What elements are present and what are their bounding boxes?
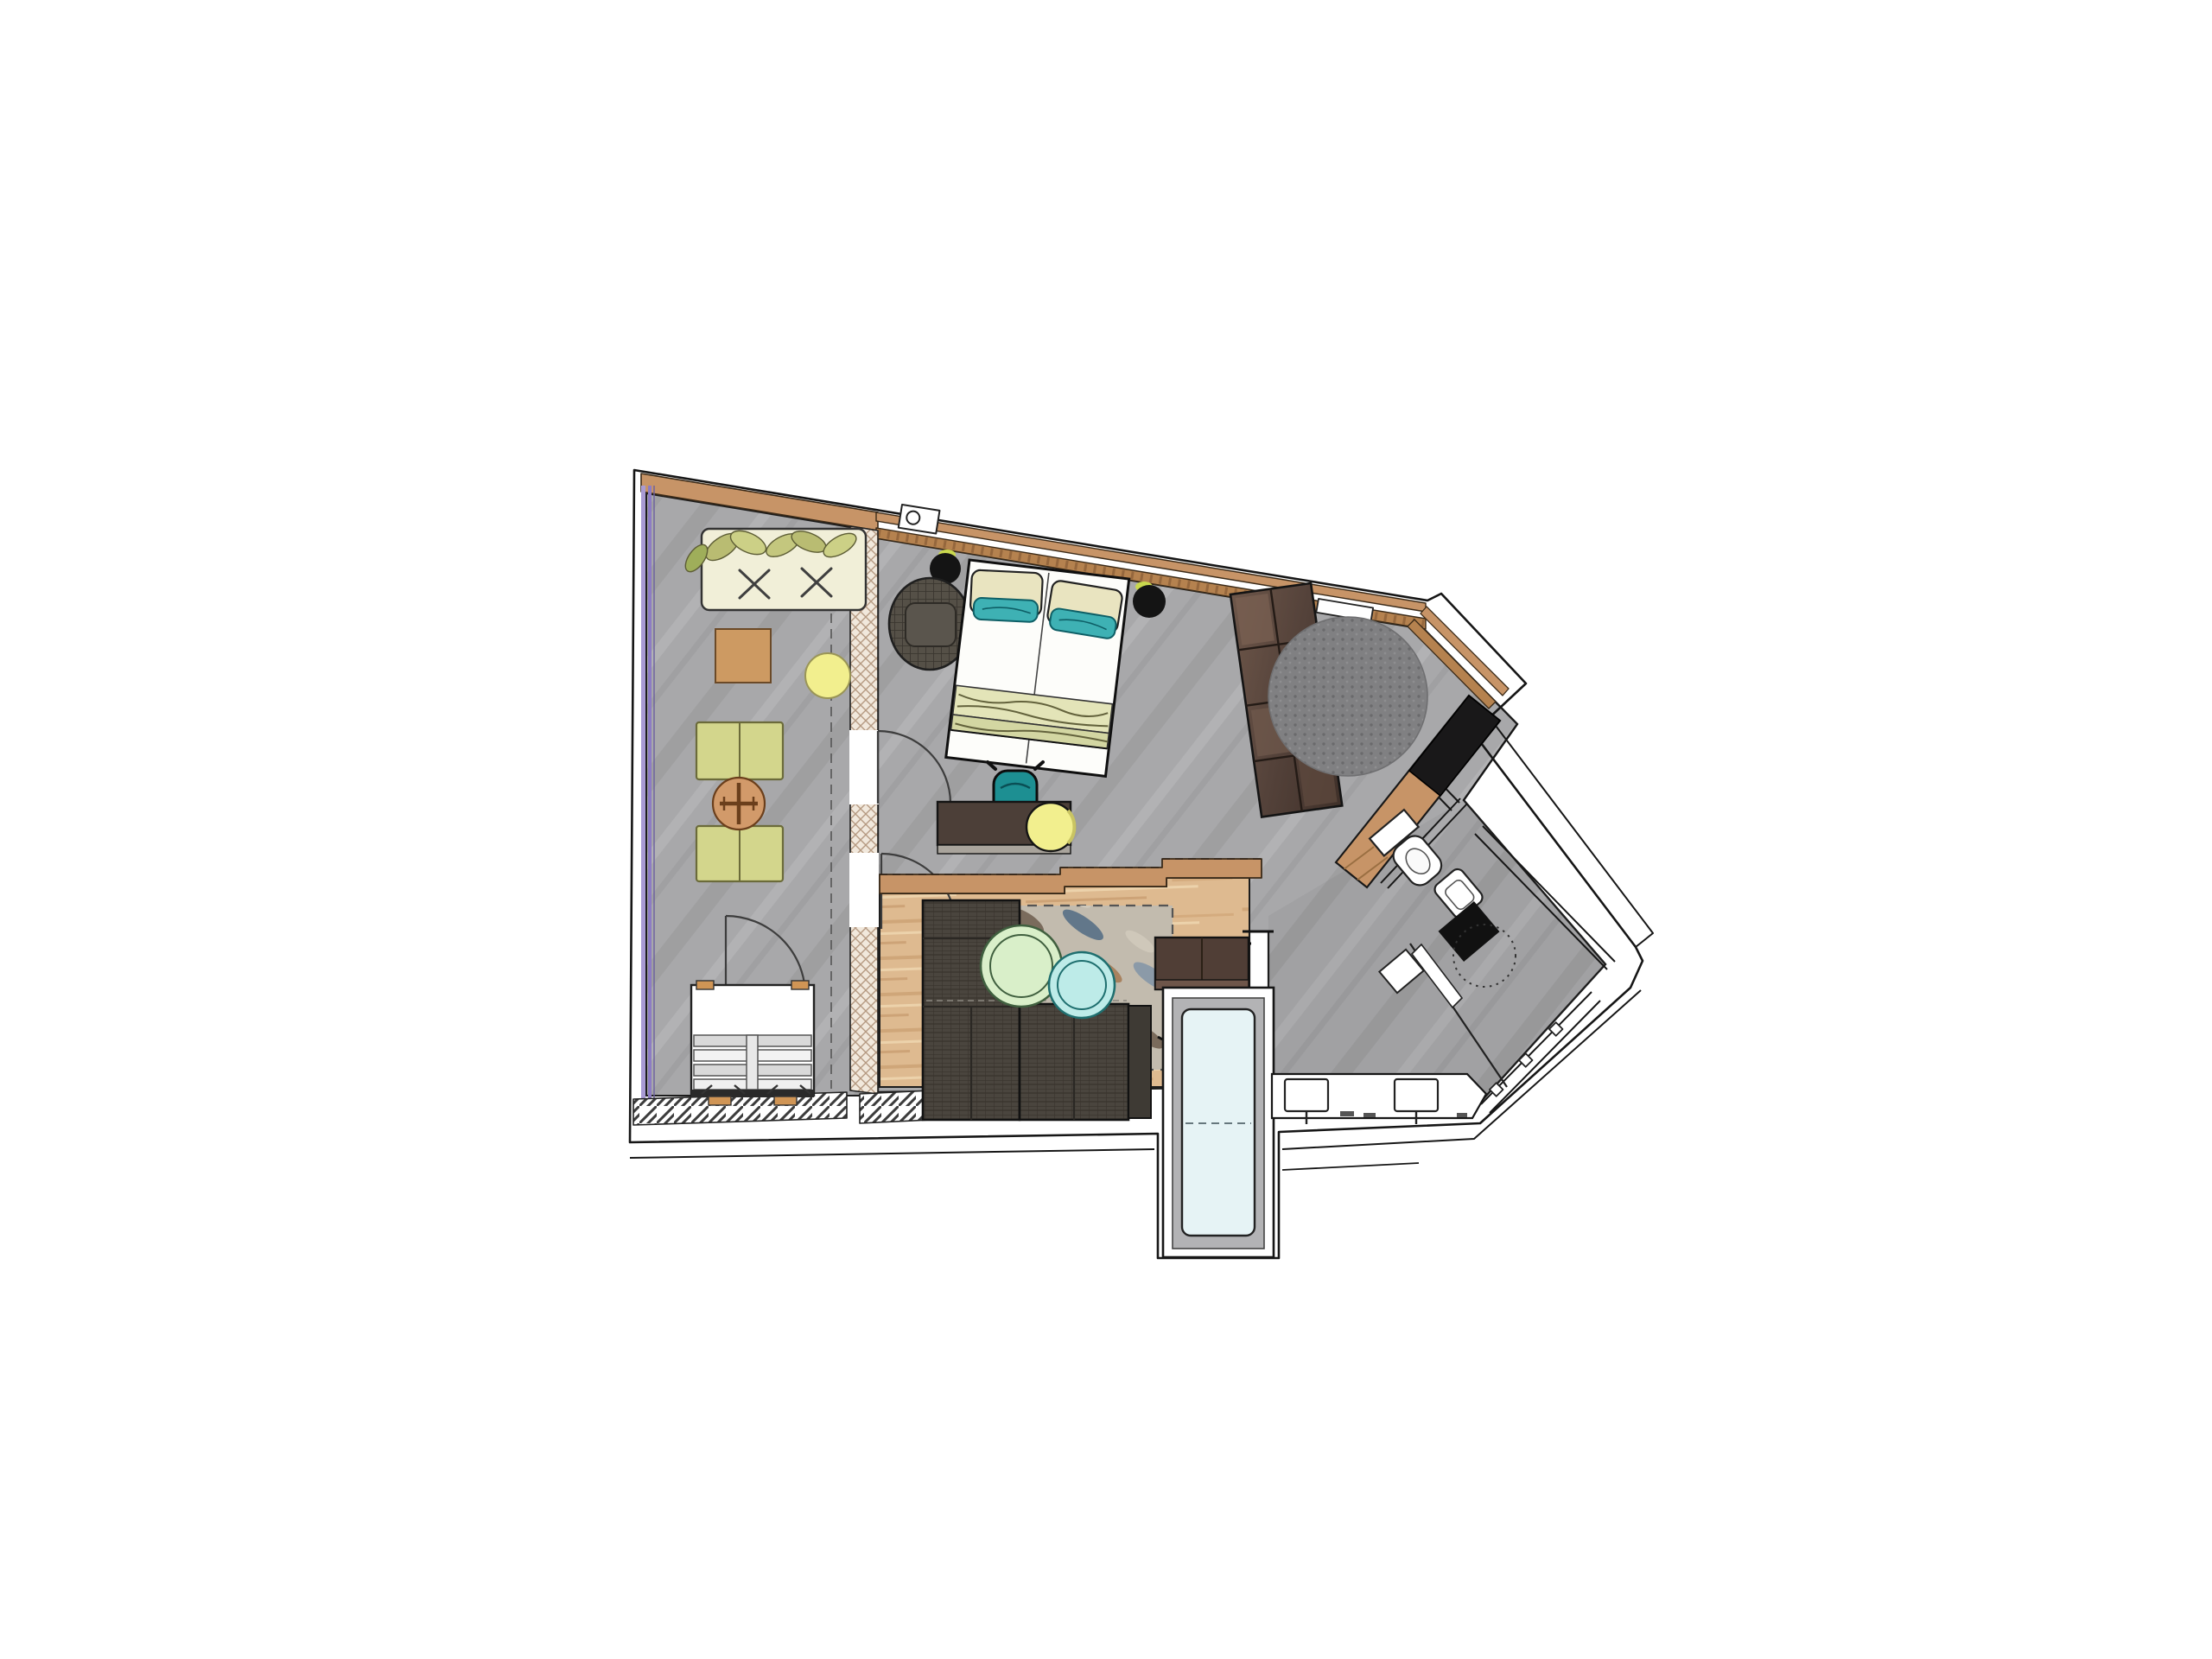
bathtub-window-bay <box>1163 988 1274 1257</box>
bottom-sill-line-left <box>630 1149 1154 1158</box>
balcony-slatted-bench <box>691 981 814 1105</box>
balcony-yellow-stool <box>805 653 850 698</box>
sun-lounger-lower <box>696 826 783 881</box>
partition-door-opening-living <box>849 853 879 927</box>
partition-wall-insulated <box>850 526 878 1094</box>
double-sink-vanity <box>1272 1074 1486 1124</box>
sink-right <box>1395 1079 1438 1111</box>
threshold-hatch-living <box>860 1090 931 1123</box>
partition-door-opening-bedroom <box>849 730 879 804</box>
settee-bench <box>1155 938 1249 989</box>
bed-pillow-left <box>969 569 1043 622</box>
sofa-armrest <box>1128 1006 1151 1118</box>
bottom-sill-line-outermost <box>1282 1163 1419 1170</box>
balcony-side-table <box>715 629 771 683</box>
yellow-pouf <box>1027 803 1075 851</box>
balcony-daybed <box>681 526 866 610</box>
window-column-marker <box>899 505 940 534</box>
round-coffee-table-cyan <box>1049 952 1115 1018</box>
sink-left <box>1285 1079 1328 1111</box>
bed-pillow-right <box>1046 580 1123 640</box>
double-bed <box>946 560 1129 776</box>
round-gray-rug <box>1268 617 1427 776</box>
balcony-bistro-table <box>713 778 765 829</box>
floor-plan-stage <box>0 0 2212 1659</box>
sun-lounger-upper <box>696 722 783 779</box>
floor-plan-drawing <box>0 0 2212 1659</box>
